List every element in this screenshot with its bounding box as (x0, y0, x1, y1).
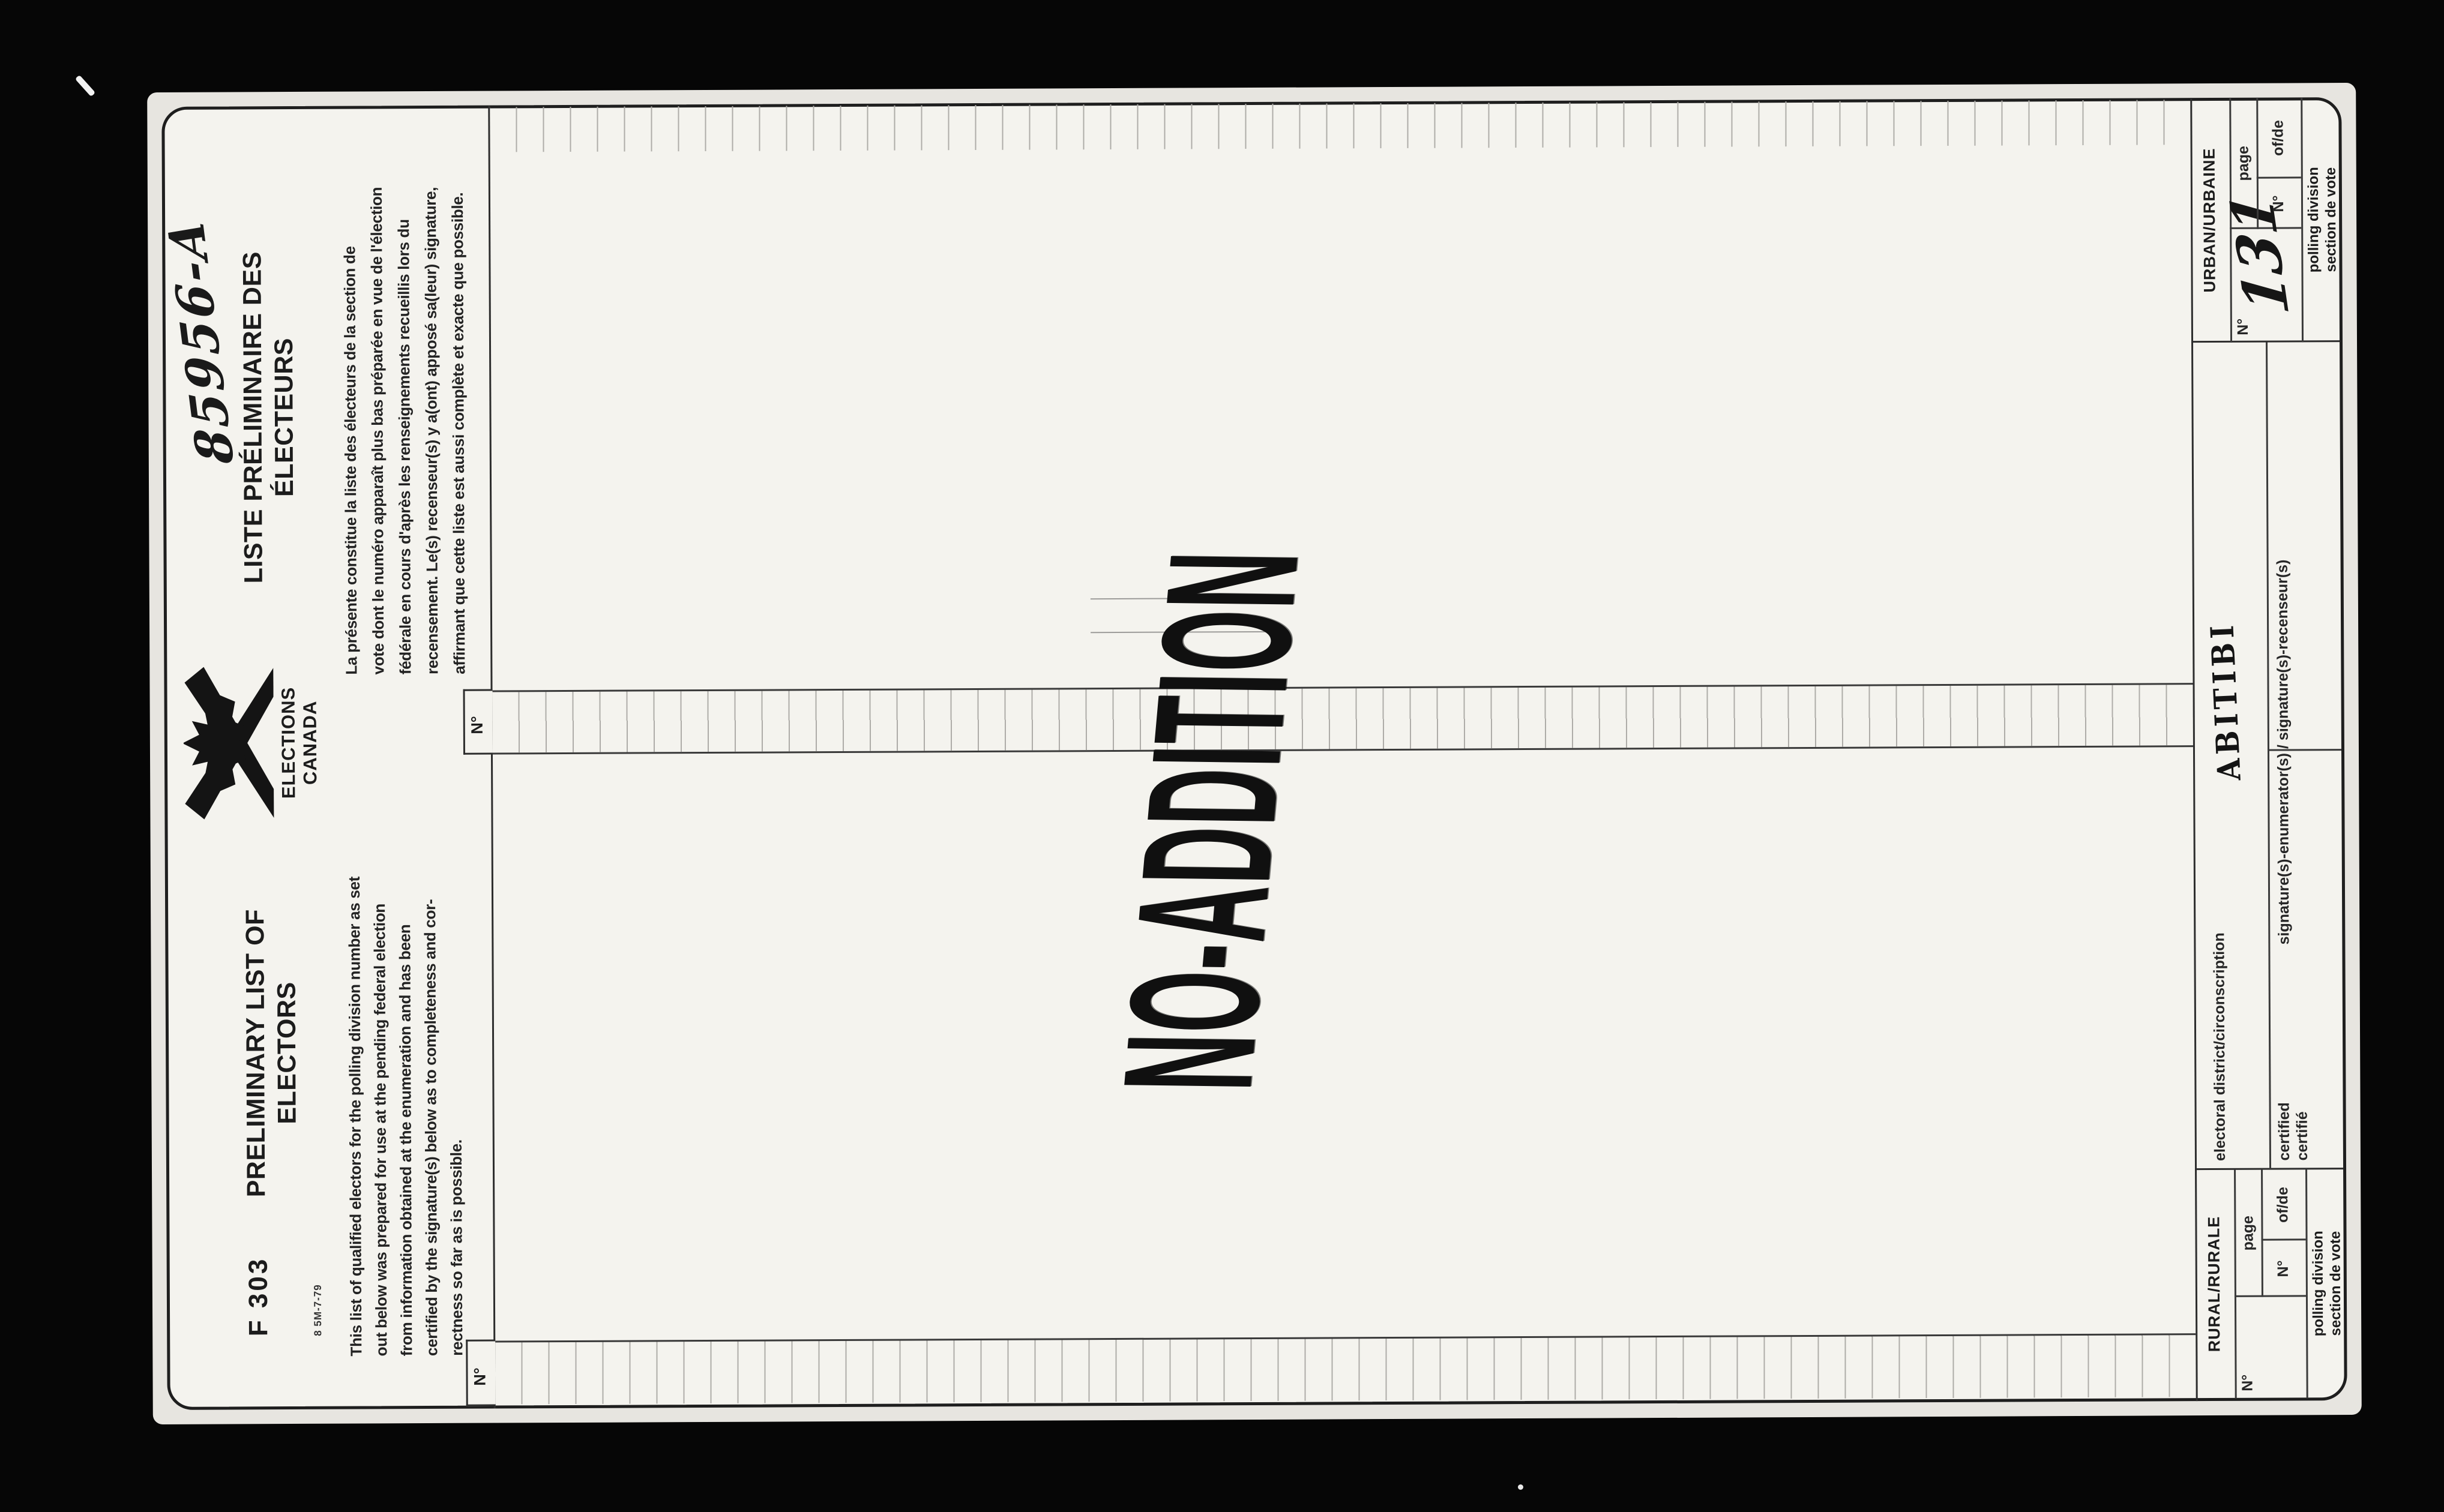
elections-canada-logo: ELECTIONS CANADA (183, 662, 321, 824)
column1-number-header: N° (471, 1367, 489, 1385)
column2-entry-ruling (493, 685, 2193, 752)
district-label: electoral district/circonscription (2211, 932, 2229, 1161)
title-english: PRELIMINARY LIST OF ELECTORS (239, 886, 303, 1220)
rural-polling-line2: section de vote (2326, 1169, 2345, 1398)
column2-number-header: N° (468, 716, 487, 734)
urban-page-label: page (2235, 98, 2253, 229)
rural-page-no-label: N° (2275, 1240, 2292, 1297)
rural-polling-line1: polling division (2309, 1169, 2328, 1398)
paragraph-english-line: out below was prepared for use at the pe… (367, 857, 394, 1356)
paragraph-french-line: recensement. Le(s) recenseur(s) y a(ont)… (417, 150, 447, 674)
urban-polling-line2: section de vote (2322, 97, 2340, 342)
paragraph-english-line: This list of qualified electors for the … (342, 857, 369, 1356)
urban-number-label: N° (2235, 319, 2252, 335)
scanned-form-page: F 303 8 5M-7-79 PRELIMINARY LIST OF ELEC… (147, 83, 2362, 1424)
paragraph-english-line: rectness so far as is possible. (442, 857, 470, 1356)
urban-polling-line1: polling division (2304, 97, 2323, 342)
form-print-code: 8 5M-7-79 (312, 1284, 324, 1336)
urban-page-no-label: N° (2270, 178, 2287, 229)
rural-number-label: N° (2239, 1375, 2257, 1391)
paragraph-english-line: from information obtained at the enumera… (392, 857, 420, 1356)
paragraph-english: This list of qualified electors for the … (342, 857, 470, 1357)
logo-line2: CANADA (299, 662, 321, 824)
rural-page-label: page (2239, 1169, 2257, 1297)
logo-wordmark: ELECTIONS CANADA (277, 662, 321, 824)
rural-block-title: RURAL/RURALE (2205, 1169, 2224, 1399)
urban-ofde-label: of/de (2269, 97, 2287, 178)
certified-french: certifié (2293, 1102, 2311, 1160)
logo-line1: ELECTIONS (277, 662, 299, 824)
certified-english: certified (2275, 1102, 2293, 1160)
paragraph-french-line: La présente constitue la liste des élect… (336, 150, 366, 674)
film-scratch-mark (75, 75, 95, 97)
paragraph-french-line: affirmant que cette liste est aussi comp… (444, 150, 474, 674)
urban-block-title: URBAN/URBAINE (2200, 98, 2220, 343)
title-french-line2: ÉLECTEURS (268, 149, 301, 686)
film-speck (1518, 1484, 1523, 1490)
title-english-line2: ELECTORS (271, 886, 303, 1220)
microfilm-background: F 303 8 5M-7-79 PRELIMINARY LIST OF ELEC… (0, 0, 2444, 1512)
column1-entry-ruling (495, 1334, 2196, 1404)
certified-label: certified certifié (2275, 1102, 2311, 1161)
signature-label: signature(s)-enumerator(s) / signature(s… (2274, 452, 2293, 1052)
title-english-line1: PRELIMINARY LIST OF (239, 886, 272, 1220)
district-value-stamp: ABITIBI (2204, 620, 2248, 782)
title-french: LISTE PRÉLIMINAIRE DES ÉLECTEURS (236, 149, 301, 686)
elections-canada-x-maple-leaf-icon (183, 662, 274, 824)
form-code: F 303 (244, 1257, 274, 1337)
right-edge-ruling (490, 100, 2190, 152)
title-french-line1: LISTE PRÉLIMINAIRE DES (236, 149, 270, 686)
rural-ofde-label: of/de (2274, 1169, 2292, 1240)
paragraph-french: La présente constitue la liste des élect… (336, 150, 474, 675)
paragraph-french-line: fédérale en cours d'après les renseignem… (390, 150, 420, 674)
paragraph-english-line: certified by the signature(s) below as t… (417, 857, 445, 1356)
rural-polling-label: polling division section de vote (2309, 1169, 2345, 1398)
no-addition-stamp: NO-ADDITION (1083, 515, 1289, 1091)
urban-polling-label: polling division section de vote (2304, 97, 2340, 342)
paragraph-french-line: vote dont le numéro apparaît plus bas pr… (363, 150, 393, 674)
